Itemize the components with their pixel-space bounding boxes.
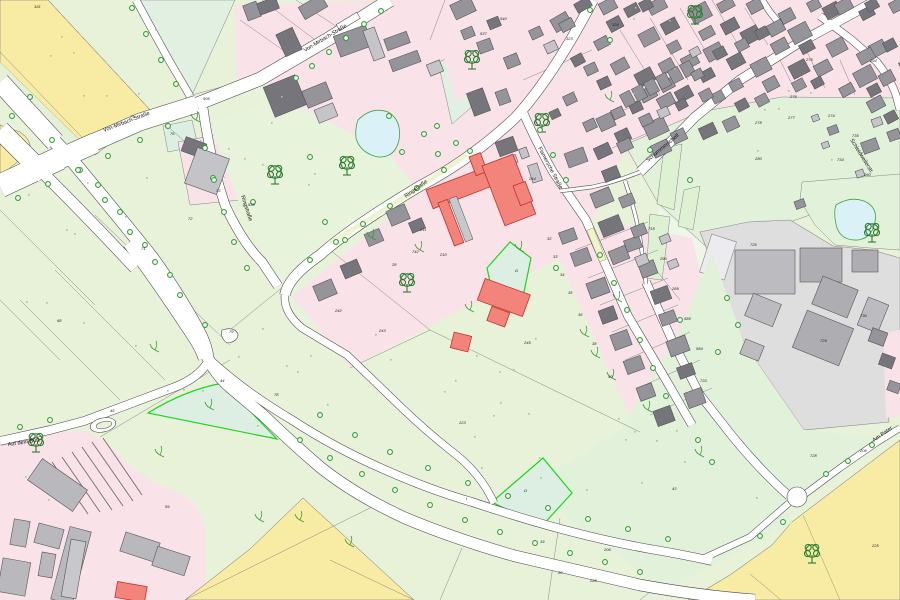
svg-text:243: 243: [378, 328, 386, 333]
svg-text:206: 206: [859, 448, 867, 453]
svg-text:735: 735: [852, 133, 859, 138]
svg-text:294: 294: [869, 58, 877, 63]
svg-text:36: 36: [578, 312, 583, 317]
svg-text:Ω: Ω: [524, 488, 527, 493]
svg-text:278: 278: [754, 120, 762, 125]
svg-text:730: 730: [860, 313, 867, 318]
svg-text:729: 729: [820, 338, 827, 343]
svg-text:211: 211: [419, 227, 426, 232]
svg-text:260: 260: [863, 172, 871, 177]
svg-text:244: 244: [528, 176, 536, 181]
svg-text:324: 324: [612, 22, 619, 27]
svg-text:40: 40: [608, 374, 613, 379]
svg-text:59: 59: [165, 504, 170, 509]
svg-text:206: 206: [603, 547, 611, 552]
svg-text:726: 726: [750, 242, 757, 247]
svg-text:323: 323: [566, 36, 573, 41]
svg-text:226: 226: [589, 578, 597, 583]
svg-text:242: 242: [334, 308, 342, 313]
svg-text:28: 28: [391, 262, 397, 267]
svg-text:225: 225: [871, 543, 879, 548]
svg-text:537: 537: [480, 31, 487, 36]
svg-text:73: 73: [216, 188, 221, 193]
svg-text:223: 223: [458, 420, 466, 425]
svg-text:115: 115: [34, 4, 41, 9]
svg-text:733: 733: [700, 378, 707, 383]
svg-text:718: 718: [648, 226, 655, 231]
svg-text:72: 72: [188, 216, 193, 221]
svg-text:33: 33: [553, 254, 558, 259]
svg-text:75: 75: [130, 114, 135, 119]
svg-text:584: 584: [696, 346, 703, 351]
svg-text:44: 44: [220, 378, 225, 383]
svg-text:536: 536: [248, 202, 255, 207]
svg-text:742: 742: [412, 249, 419, 254]
svg-text:506: 506: [203, 96, 210, 101]
svg-text:35: 35: [568, 290, 573, 295]
svg-text:728: 728: [810, 453, 817, 458]
svg-text:Ω: Ω: [515, 268, 518, 273]
svg-text:290: 290: [659, 256, 667, 261]
svg-text:245: 245: [523, 340, 531, 345]
svg-text:210: 210: [439, 252, 447, 257]
svg-text:734: 734: [837, 157, 844, 162]
svg-text:71: 71: [141, 246, 145, 251]
svg-text:280: 280: [754, 156, 762, 161]
svg-text:276: 276: [789, 94, 797, 99]
svg-text:43: 43: [672, 486, 677, 491]
svg-text:76: 76: [170, 131, 175, 136]
svg-text:79: 79: [229, 329, 234, 334]
svg-text:32: 32: [547, 236, 552, 241]
svg-text:78: 78: [274, 392, 279, 397]
svg-text:289: 289: [671, 286, 679, 291]
svg-text:275: 275: [805, 57, 813, 62]
svg-text:540: 540: [500, 16, 507, 21]
svg-text:34: 34: [560, 272, 565, 277]
svg-text:20: 20: [557, 570, 563, 575]
svg-text:38: 38: [592, 341, 597, 346]
svg-text:45: 45: [110, 408, 115, 413]
svg-text:68: 68: [57, 318, 62, 323]
svg-text:274: 274: [827, 113, 835, 118]
svg-text:277: 277: [787, 115, 795, 120]
svg-text:19: 19: [540, 539, 545, 544]
svg-text:585: 585: [684, 316, 691, 321]
